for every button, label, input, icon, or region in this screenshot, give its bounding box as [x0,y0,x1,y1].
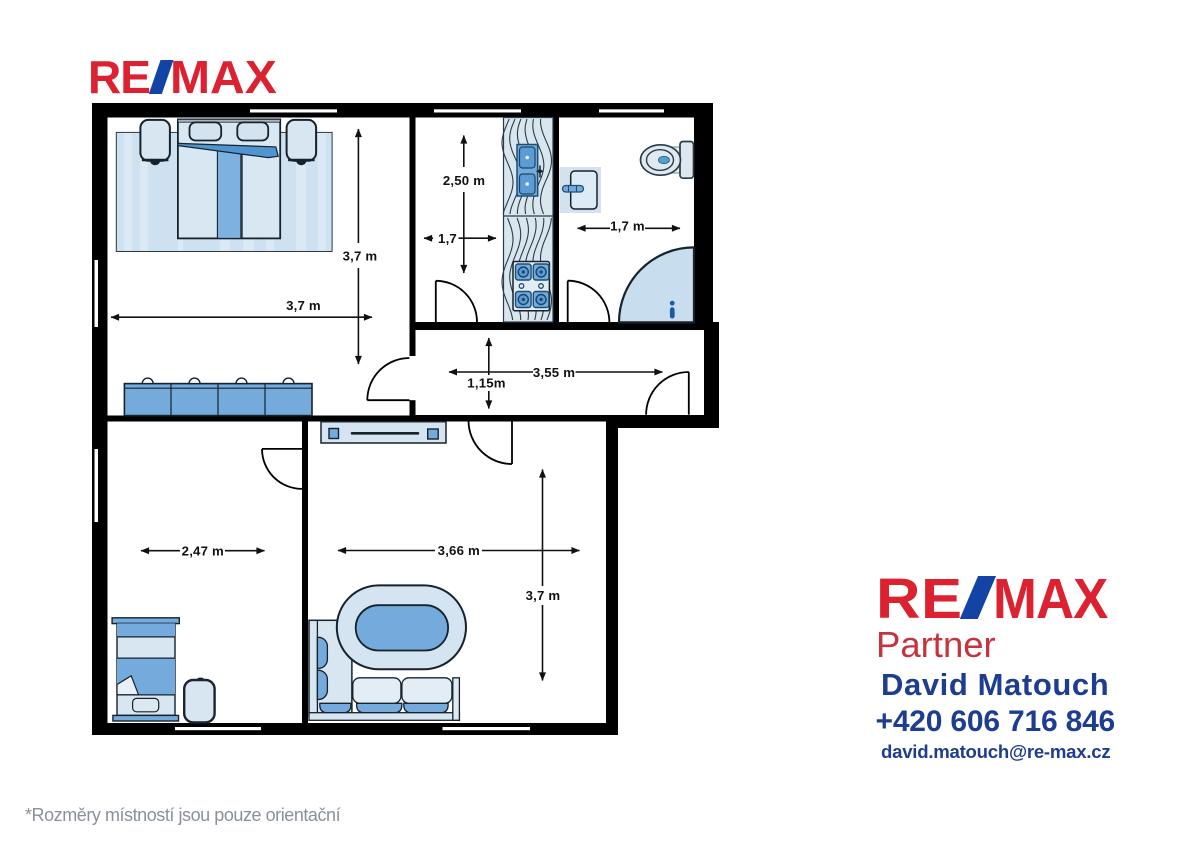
svg-text:1,15m: 1,15m [467,375,505,390]
svg-text:3,7 m: 3,7 m [286,298,321,313]
svg-text:1,7 m: 1,7 m [610,219,645,234]
svg-text:3,66 m: 3,66 m [438,543,480,558]
svg-text:2,50 m: 2,50 m [443,173,485,188]
svg-text:3,7 m: 3,7 m [343,248,378,263]
svg-text:1,7: 1,7 [438,231,457,246]
svg-text:2,47 m: 2,47 m [182,543,224,558]
svg-text:3,55 m: 3,55 m [533,365,575,380]
svg-text:3,7 m: 3,7 m [526,588,561,603]
